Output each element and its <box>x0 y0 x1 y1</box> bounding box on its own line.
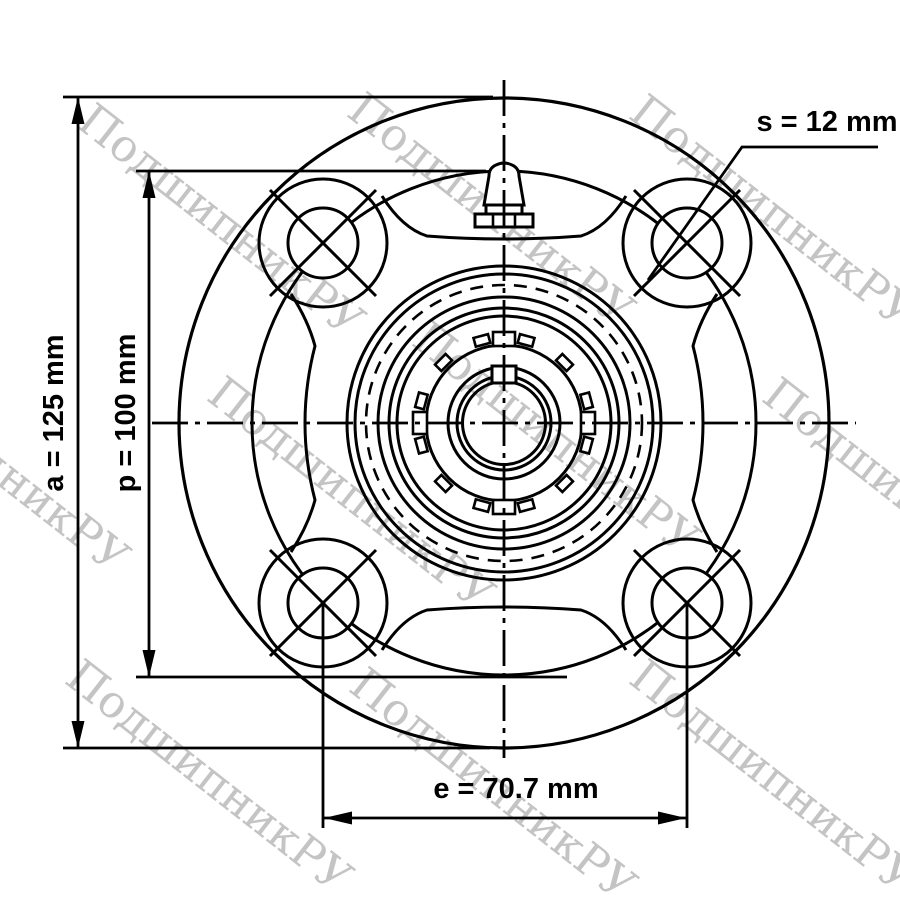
dimension-a-label: a = 125 mm <box>38 334 70 491</box>
washer-tab <box>473 334 490 347</box>
dimension-p-label: p = 100 mm <box>110 334 142 493</box>
washer-tab <box>473 499 490 512</box>
washer-tab <box>518 334 535 347</box>
watermark-text: ПодшипникРУ <box>620 649 900 900</box>
arrowhead-right <box>658 812 686 825</box>
dimension-e-label: e = 70.7 mm <box>433 773 598 805</box>
bearing-flange-technical-drawing: ПодшипникРУПодшипникРУПодшипникРУПодшипн… <box>0 0 900 900</box>
washer-tab <box>580 392 593 409</box>
arrowhead-left <box>324 812 352 825</box>
washer-tab <box>580 437 593 454</box>
arrowhead-down <box>72 721 85 748</box>
arrowhead-down <box>143 650 156 677</box>
dimension-s-label: s = 12 mm <box>756 106 897 138</box>
washer-tab <box>415 437 428 454</box>
washer-tab <box>518 499 535 512</box>
watermark-text: ПодшипникРУ <box>753 367 900 622</box>
washer-tab <box>415 392 428 409</box>
arrowhead-up <box>72 97 85 124</box>
bolt-hole-group <box>623 179 751 307</box>
